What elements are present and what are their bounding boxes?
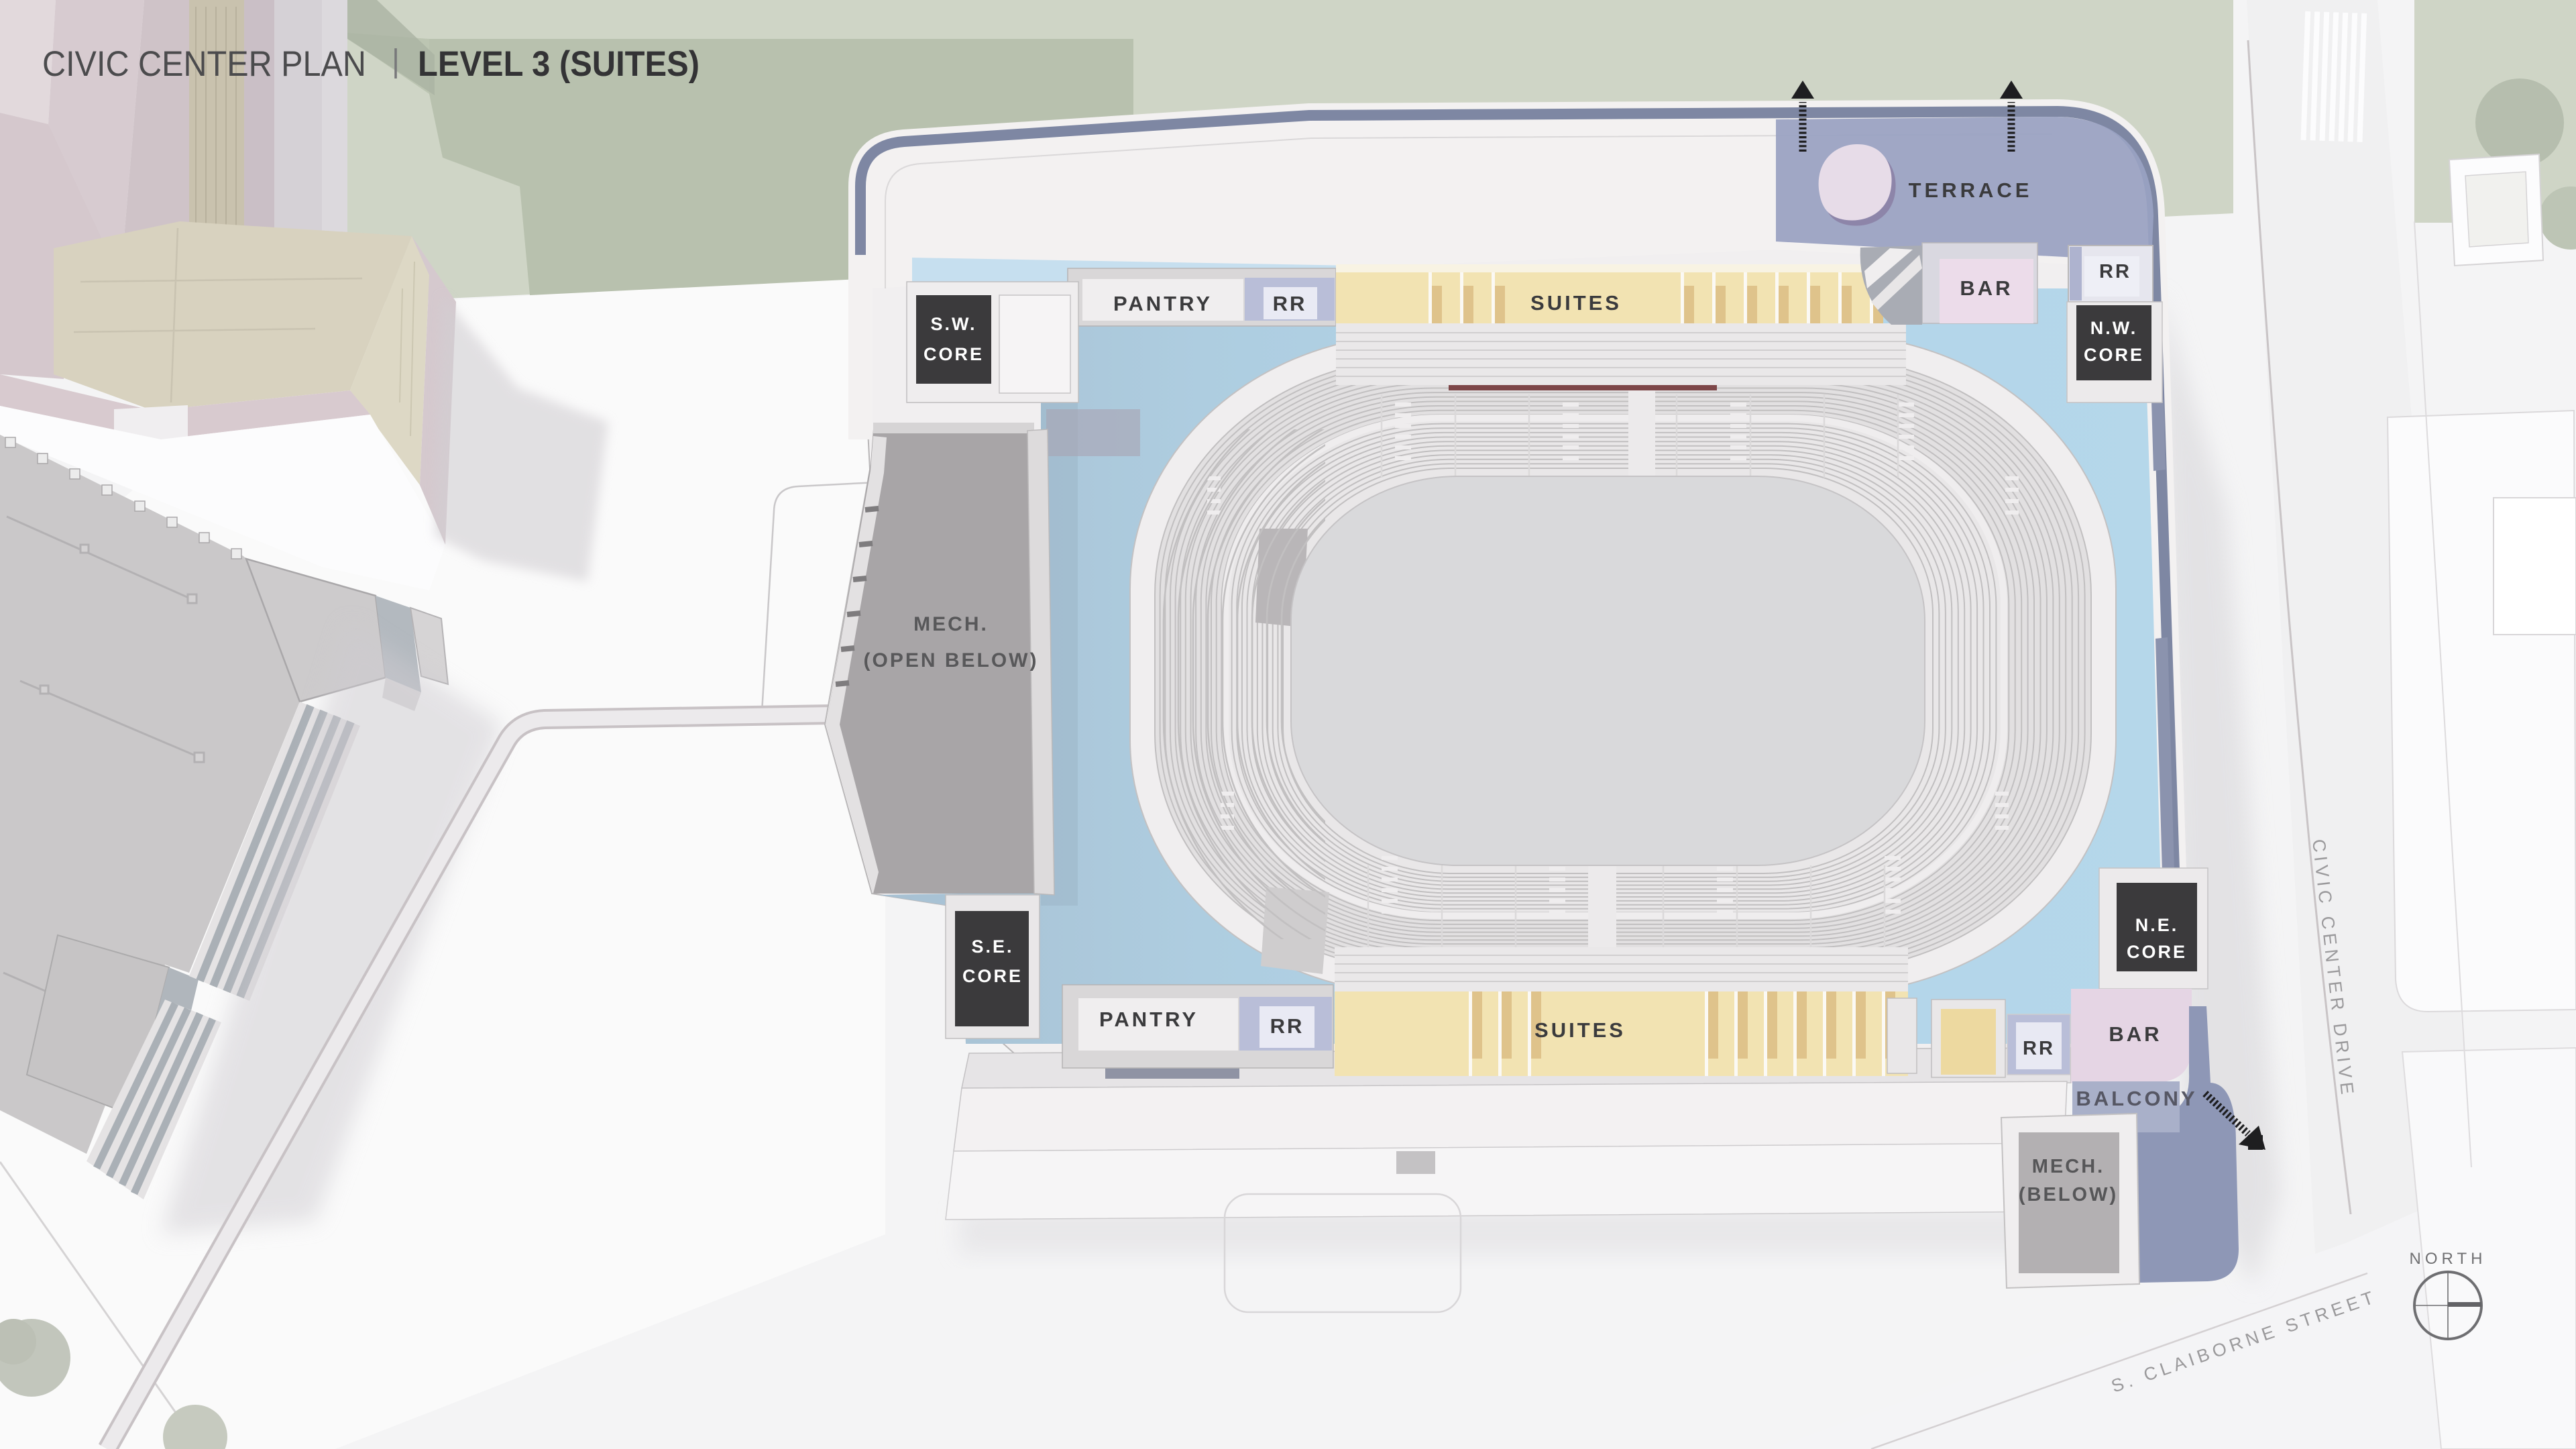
svg-text:(OPEN BELOW): (OPEN BELOW) (864, 649, 1039, 672)
svg-text:N.W.: N.W. (2090, 318, 2138, 338)
svg-text:CORE: CORE (2127, 942, 2187, 962)
svg-text:SUITES: SUITES (1534, 1018, 1626, 1042)
svg-text:RR: RR (2023, 1038, 2055, 1059)
svg-text:BALCONY: BALCONY (2076, 1087, 2197, 1110)
svg-text:CORE: CORE (923, 344, 984, 364)
svg-text:(BELOW): (BELOW) (2019, 1184, 2118, 1205)
svg-text:MECH.: MECH. (2032, 1156, 2105, 1177)
svg-text:CORE: CORE (2084, 345, 2144, 365)
svg-text:NORTH: NORTH (2410, 1250, 2487, 1268)
svg-text:TERRACE: TERRACE (1909, 178, 2033, 202)
svg-text:MECH.: MECH. (913, 613, 989, 635)
svg-text:CORE: CORE (962, 966, 1023, 986)
svg-text:N.E.: N.E. (2135, 915, 2179, 935)
svg-text:S.E.: S.E. (971, 936, 1013, 957)
svg-text:PANTRY: PANTRY (1099, 1008, 1198, 1031)
svg-text:S.W.: S.W. (930, 314, 976, 334)
svg-text:RR: RR (2099, 261, 2131, 282)
svg-text:RR: RR (1273, 292, 1307, 315)
svg-text:LEVEL 3 (SUITES): LEVEL 3 (SUITES) (418, 44, 699, 84)
svg-text:RR: RR (1270, 1014, 1304, 1038)
svg-text:CIVIC CENTER PLAN: CIVIC CENTER PLAN (42, 44, 366, 84)
svg-text:BAR: BAR (1960, 276, 2013, 300)
svg-text:BAR: BAR (2109, 1022, 2162, 1046)
svg-text:SUITES: SUITES (1530, 291, 1622, 315)
svg-text:PANTRY: PANTRY (1113, 292, 1213, 315)
